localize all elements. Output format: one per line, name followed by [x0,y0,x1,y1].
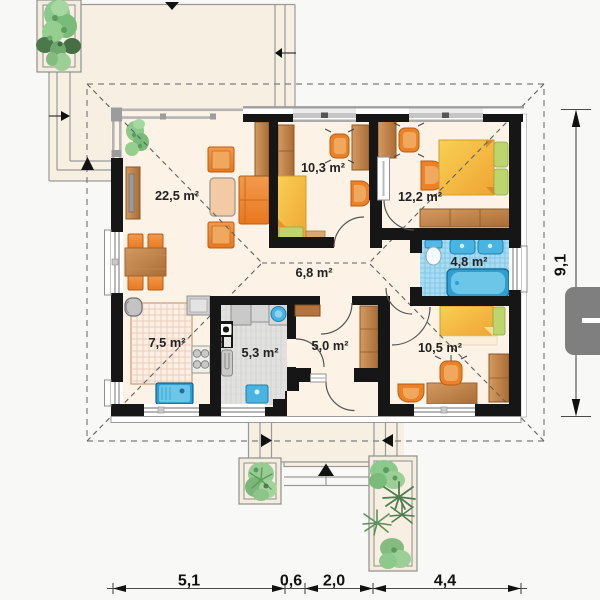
svg-text:5,1: 5,1 [178,573,200,590]
svg-text:5,0 m²: 5,0 m² [312,338,349,353]
svg-text:22,5 m²: 22,5 m² [155,188,199,203]
svg-text:7,5 m²: 7,5 m² [149,335,186,350]
svg-text:6,8 m²: 6,8 m² [296,265,333,280]
svg-text:5,3 m²: 5,3 m² [242,345,279,360]
svg-text:0,6: 0,6 [280,573,302,590]
svg-text:10,3 m²: 10,3 m² [301,160,345,175]
svg-text:2,0: 2,0 [323,573,345,590]
svg-text:9,1: 9,1 [553,254,570,276]
svg-text:12,2 m²: 12,2 m² [398,189,442,204]
svg-text:4,4: 4,4 [434,573,456,590]
svg-text:4,8 m²: 4,8 m² [451,254,488,269]
svg-text:10,5 m²: 10,5 m² [418,340,462,355]
